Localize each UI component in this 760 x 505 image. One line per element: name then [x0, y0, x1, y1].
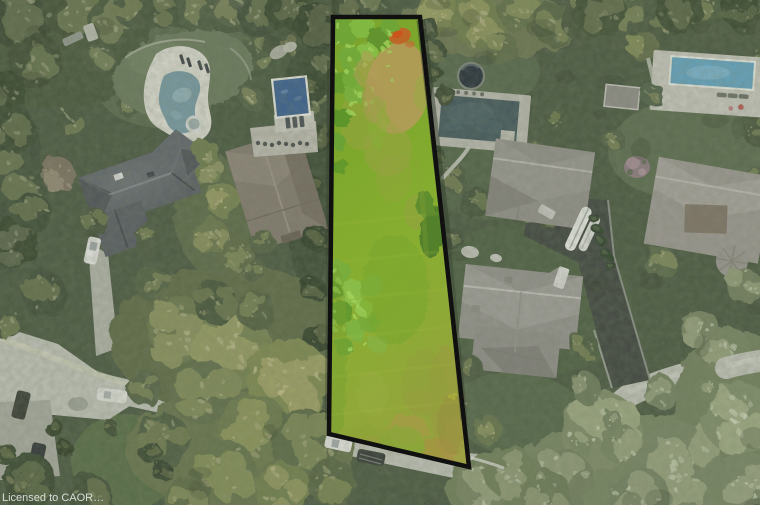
- svg-text:Licensed to CAOR…: Licensed to CAOR…: [2, 492, 104, 504]
